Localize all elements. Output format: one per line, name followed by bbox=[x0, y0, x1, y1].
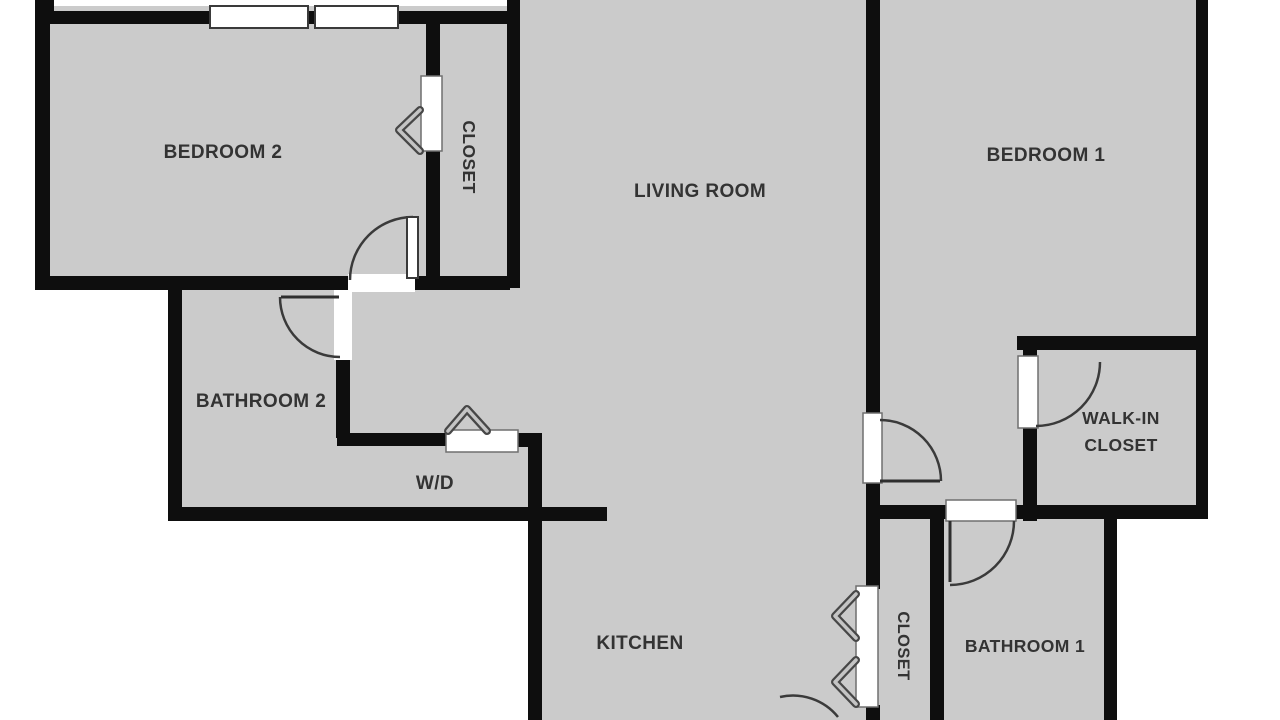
closet-bottom-bifold-opening bbox=[856, 586, 878, 707]
bathroom-2-door-opening bbox=[334, 290, 352, 360]
room-label-walk-in-line1: WALK-IN bbox=[1082, 408, 1160, 428]
room-label-closet-bottom: CLOSET bbox=[894, 611, 912, 680]
room-label-wd: W/D bbox=[416, 473, 454, 494]
bedroom-2-door-leaf bbox=[407, 217, 418, 278]
room-label-living-room: LIVING ROOM bbox=[634, 181, 766, 202]
room-label-bedroom-1: BEDROOM 1 bbox=[987, 145, 1106, 166]
bedroom-1-door-opening bbox=[863, 413, 882, 483]
floor-living-room bbox=[507, 0, 880, 519]
room-label-walk-in-line2: CLOSET bbox=[1084, 435, 1157, 455]
room-label-bathroom-1: BATHROOM 1 bbox=[965, 636, 1085, 656]
bedroom-2-door-opening bbox=[348, 274, 415, 292]
window-icon bbox=[315, 6, 398, 28]
bathroom-1-door-opening bbox=[946, 500, 1016, 521]
floor-plan-canvas: BEDROOM 2 CLOSET LIVING ROOM BEDROOM 1 B… bbox=[0, 0, 1280, 720]
room-label-closet-top: CLOSET bbox=[459, 120, 479, 193]
room-label-bathroom-2: BATHROOM 2 bbox=[196, 391, 326, 412]
floor-kitchen bbox=[528, 519, 880, 720]
floor-plan: BEDROOM 2 CLOSET LIVING ROOM BEDROOM 1 B… bbox=[0, 0, 1280, 720]
room-label-bedroom-2: BEDROOM 2 bbox=[164, 142, 283, 163]
window-icon bbox=[210, 6, 308, 28]
walk-in-closet-door-opening bbox=[1018, 356, 1038, 428]
room-label-kitchen: KITCHEN bbox=[596, 633, 683, 654]
closet-top-bifold-opening bbox=[421, 76, 442, 151]
window-symbols bbox=[210, 6, 398, 28]
wd-bifold-opening bbox=[446, 430, 518, 452]
